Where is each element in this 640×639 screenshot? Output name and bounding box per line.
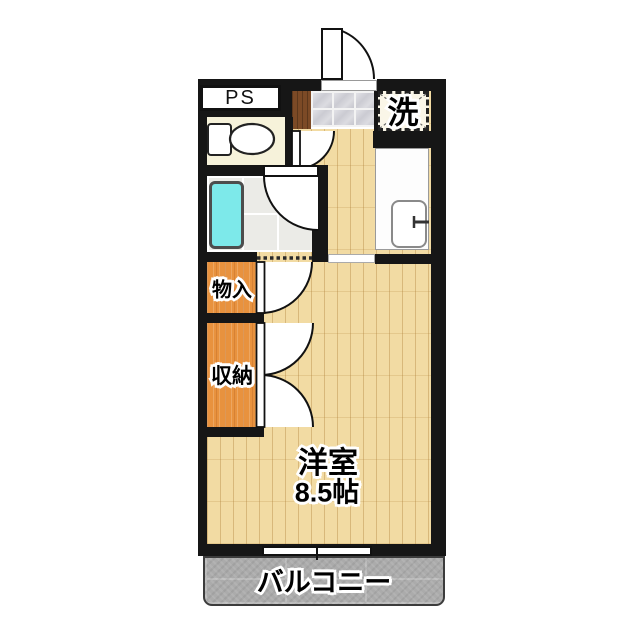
washer-label: 洗 bbox=[388, 88, 419, 133]
entry-tile-floor bbox=[311, 91, 377, 129]
entry-step bbox=[292, 91, 311, 129]
entry-tile bbox=[334, 93, 353, 108]
balcony-window bbox=[262, 546, 372, 556]
wall-closet-bottom bbox=[198, 427, 264, 437]
wall-bathroom-bottom bbox=[198, 252, 257, 262]
storage-label: 物入 bbox=[212, 274, 252, 303]
balcony-label: バルコニー bbox=[257, 561, 391, 600]
pipe-space-label: PS bbox=[225, 87, 256, 110]
pipe-space-box: PS bbox=[200, 85, 281, 111]
passage-opening bbox=[328, 254, 375, 263]
entry-tile bbox=[313, 93, 332, 108]
entry-door-leaf bbox=[322, 29, 342, 79]
wall-closet-mid bbox=[198, 313, 264, 323]
entry-tile bbox=[334, 110, 353, 125]
entry-door-swing-arc bbox=[342, 31, 374, 79]
entry-tile bbox=[356, 110, 375, 125]
closet-label: 収納 bbox=[211, 360, 253, 390]
entry-tile bbox=[356, 93, 375, 108]
wall-toilet-bottom bbox=[198, 165, 321, 176]
bathtub bbox=[209, 181, 244, 249]
wall-kitchen-bottom bbox=[375, 254, 431, 264]
wall-toilet-right bbox=[285, 117, 293, 168]
wall-bathroom-right bbox=[312, 165, 328, 262]
western-room-size-label: 8.5帖 bbox=[295, 471, 360, 510]
toilet-room bbox=[207, 117, 285, 165]
entry-tile bbox=[313, 110, 332, 125]
wall-right bbox=[431, 79, 446, 556]
entry-threshold bbox=[321, 80, 377, 91]
floor-plan: PS bbox=[0, 0, 640, 639]
wall-washer-bottom bbox=[373, 131, 431, 148]
kitchen-sink bbox=[391, 200, 427, 248]
wall-entry-divider bbox=[374, 91, 378, 131]
